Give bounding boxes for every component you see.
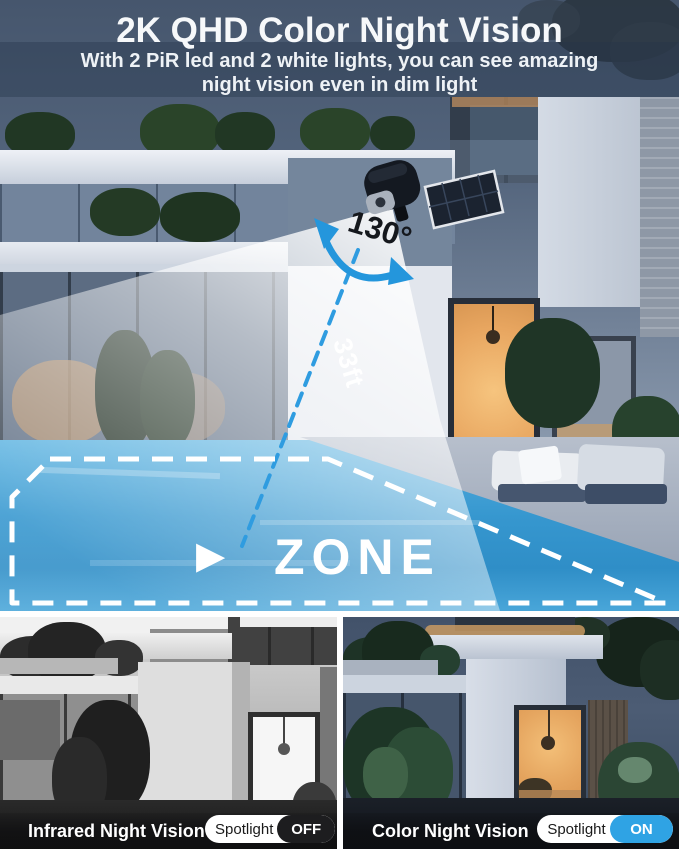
- ir-pendant-lamp: [278, 743, 290, 755]
- cn-bush-light: [618, 757, 652, 783]
- ir-slab: [0, 676, 138, 694]
- solar-panel: [425, 171, 503, 228]
- marketing-image: 130° 33ft ▶ ZONE 2K QHD Color Night Visi…: [0, 0, 679, 849]
- cn-slab: [343, 675, 466, 693]
- ir-pendant-cord: [283, 717, 285, 745]
- subtitle-line-1: With 2 PiR led and 2 white lights, you c…: [0, 50, 679, 73]
- spotlight-label-left: Spotlight: [205, 821, 277, 838]
- play-icon: ▶: [196, 534, 225, 578]
- ir-interior: [0, 700, 60, 760]
- subtitle-line-2: night vision even in dim light: [0, 74, 679, 97]
- caption-color: Color Night Vision: [372, 817, 529, 845]
- toggle-state-off[interactable]: OFF: [277, 815, 335, 843]
- caption-infrared: Infrared Night Vision: [28, 817, 205, 845]
- cn-fern: [363, 747, 408, 802]
- ir-slab: [240, 617, 337, 627]
- toggle-state-on[interactable]: ON: [610, 815, 673, 843]
- cn-pendant-lamp: [541, 736, 555, 750]
- spotlight-toggle-left[interactable]: Spotlight OFF: [205, 815, 335, 843]
- page-title: 2K QHD Color Night Vision: [0, 11, 679, 51]
- spotlight-label-right: Spotlight: [537, 821, 610, 838]
- ir-planter: [0, 658, 118, 674]
- spotlight-toggle-right[interactable]: Spotlight ON: [537, 815, 673, 843]
- cn-planter: [343, 660, 438, 676]
- zone-label: ZONE: [274, 528, 441, 586]
- main-photo: 130° 33ft ▶ ZONE 2K QHD Color Night Visi…: [0, 0, 679, 611]
- cn-pendant-cord: [548, 710, 550, 738]
